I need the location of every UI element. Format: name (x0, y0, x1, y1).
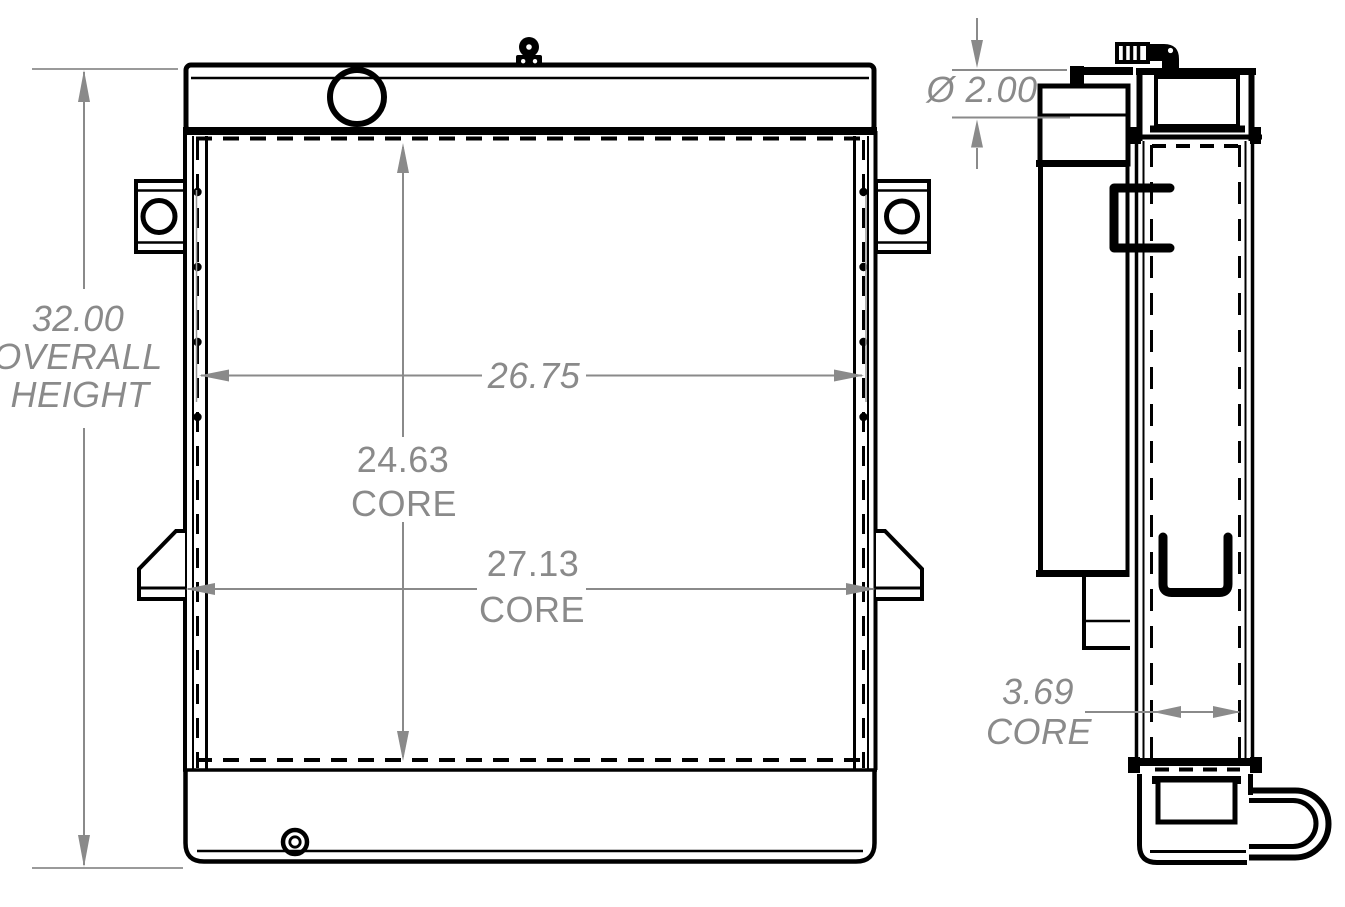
side-inlet-pipe-step (1082, 577, 1130, 648)
arrow-down-icon (397, 731, 409, 761)
arrow-right-icon (1213, 706, 1241, 718)
dim-core-height: 24.63 CORE (351, 143, 457, 761)
arrow-left-icon (1153, 706, 1181, 718)
side-upper-bracket (1114, 188, 1170, 248)
arrow-right-icon (834, 370, 864, 382)
arrow-left-icon (199, 370, 229, 382)
technical-drawing: 32.00 OVERALL HEIGHT 26.75 24.63 CORE (0, 0, 1345, 907)
arrow-up-icon (971, 120, 983, 148)
dim-core-height-value: 24.63 (357, 439, 450, 480)
front-view (136, 37, 929, 862)
side-inlet-pipe-top (1036, 66, 1133, 164)
arrow-down-icon (971, 40, 983, 68)
dim-pipe-diameter-value: Ø 2.00 (925, 69, 1037, 110)
dim-core-width-value: 27.13 (487, 543, 580, 584)
dim-core-depth: 3.69 CORE (986, 671, 1241, 752)
vent-fitting (516, 37, 542, 66)
dim-overall-height-label-2: HEIGHT (10, 374, 152, 415)
arrow-left-icon (185, 583, 215, 595)
front-top-tank (183, 65, 877, 131)
side-core-columns (1137, 141, 1253, 765)
dim-core-width: 27.13 CORE (185, 543, 876, 630)
side-lower-bracket (1163, 537, 1228, 593)
side-outlet-pipe (1249, 791, 1329, 858)
dim-core-depth-value: 3.69 (1002, 671, 1074, 712)
left-lower-bracket (139, 531, 185, 599)
dim-core-width-label: CORE (479, 589, 585, 630)
side-top-tank (1130, 68, 1262, 146)
arrow-right-icon (846, 583, 876, 595)
dim-tank-width-value: 26.75 (487, 355, 581, 396)
dim-core-height-label: CORE (351, 483, 457, 524)
side-bottom-tank (1128, 757, 1262, 863)
dim-tank-width: 26.75 (197, 190, 867, 402)
dim-overall-height-value: 32.00 (32, 298, 125, 339)
right-lower-bracket (876, 531, 922, 599)
dim-overall-height-label-1: OVERALL (0, 336, 163, 377)
right-upper-mounting-bracket (876, 181, 929, 252)
arrow-up-icon (78, 70, 90, 102)
left-upper-mounting-bracket (136, 181, 185, 252)
arrow-down-icon (78, 835, 90, 867)
arrow-up-icon (397, 143, 409, 173)
dim-core-depth-label: CORE (986, 711, 1092, 752)
right-side-channel (855, 131, 876, 770)
drawing-canvas: 32.00 OVERALL HEIGHT 26.75 24.63 CORE (0, 0, 1345, 907)
